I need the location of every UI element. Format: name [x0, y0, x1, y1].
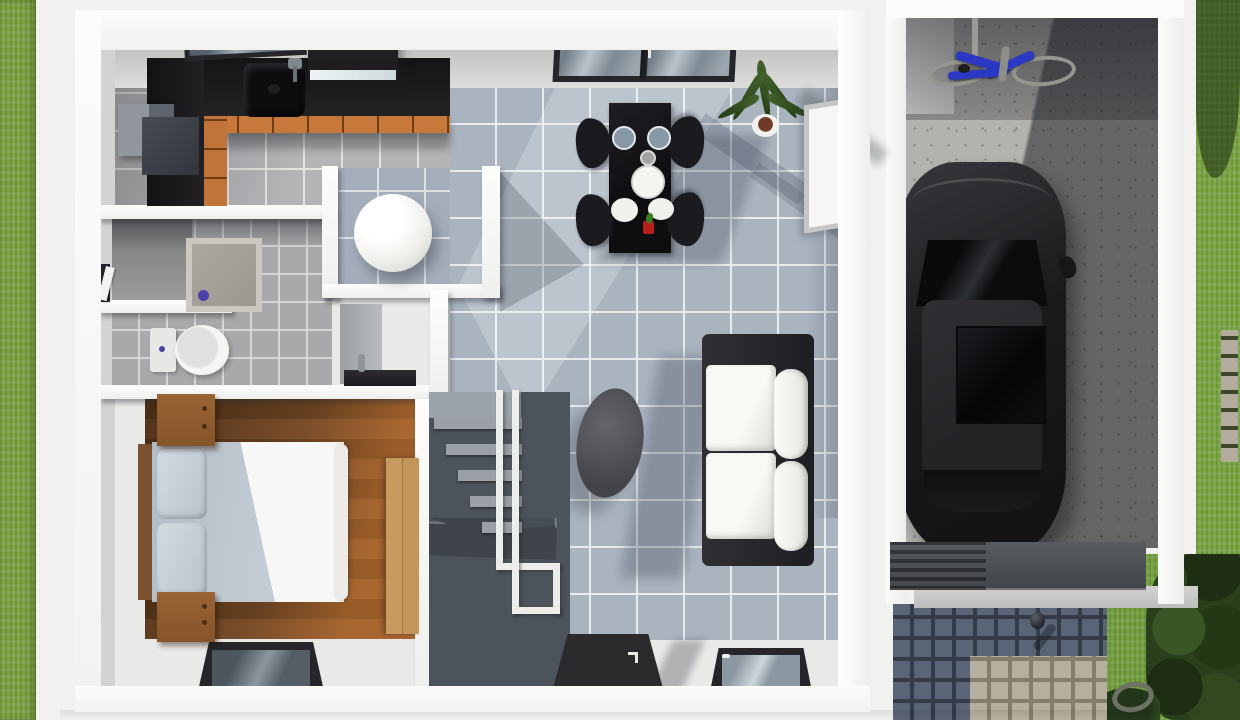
plate-blue — [647, 126, 671, 150]
wall-niche-right — [430, 290, 448, 400]
shower-tray — [186, 238, 262, 312]
kitchen-counter-shadow — [204, 133, 450, 149]
bed-foot-roll — [334, 444, 348, 600]
car-sunroof — [956, 326, 1046, 424]
plant-pot — [752, 114, 779, 137]
wall-nook-bottom — [322, 284, 500, 298]
garage-wall-left — [886, 0, 906, 604]
stair-handrail — [496, 563, 560, 570]
car-windshield — [916, 240, 1048, 306]
car-rear-window — [924, 470, 1040, 512]
bike-stand-pole — [972, 18, 978, 58]
nightstand-top — [157, 394, 215, 446]
drawer-handle — [202, 620, 207, 625]
sofa-back-cushion — [774, 461, 808, 551]
bed-headboard — [138, 444, 152, 600]
sofa-seat-cushion — [706, 365, 776, 451]
bollard-light — [1030, 612, 1045, 629]
plate-blue — [612, 126, 636, 150]
cooktop — [142, 117, 199, 175]
garage-wall-top — [886, 0, 1184, 18]
toilet-flush-button — [159, 346, 165, 352]
stair-step — [516, 518, 557, 528]
sofa-seat-cushion — [706, 453, 776, 539]
stair-step-upper — [446, 444, 522, 455]
stair-handrail — [512, 390, 519, 614]
front-door-handle — [635, 652, 638, 663]
garage-wall-right — [1158, 0, 1184, 604]
bicycle-seat — [958, 64, 970, 73]
house-wall-top — [75, 10, 870, 50]
sink-drain — [268, 84, 280, 94]
wall-bathroom-top — [98, 205, 334, 219]
nightstand-bottom — [157, 592, 215, 642]
plate-large-white — [631, 165, 665, 199]
garage-door-ridges — [890, 542, 986, 590]
toilet-bowl — [175, 325, 229, 375]
lawn-left — [0, 0, 36, 720]
window-handle — [722, 654, 730, 658]
sofa-back-cushion — [774, 369, 808, 459]
stone-paver-path — [1221, 330, 1238, 462]
drawer-handle — [202, 604, 207, 609]
front-door — [552, 634, 664, 692]
stair-handrail — [512, 607, 560, 614]
plate-white — [611, 198, 638, 222]
house-wall-right — [838, 10, 870, 712]
washbasin-faucet — [358, 354, 365, 372]
round-white-table — [354, 194, 432, 272]
stair-handrail — [496, 390, 503, 570]
wall-nook-right — [482, 166, 500, 298]
drawer-handle — [202, 406, 207, 411]
bed-pillow — [157, 449, 207, 519]
kitchen-faucet-arm — [293, 66, 297, 82]
stair-landing — [429, 392, 521, 418]
house-wall-bottom — [75, 686, 870, 712]
drawer-handle — [202, 424, 207, 429]
shower-drain — [198, 290, 209, 301]
floor-plan-scene — [0, 0, 1240, 720]
house-wall-left — [75, 10, 101, 712]
wall-nook-left — [322, 166, 338, 298]
wall-bedroom-top — [98, 385, 432, 399]
car-hood-highlight — [912, 178, 1052, 224]
washbasin-counter — [344, 370, 416, 386]
kitchen-cabinet-fronts — [204, 116, 450, 133]
kitchen-cabinet-fronts-left — [204, 116, 227, 206]
range-hood-light — [310, 70, 396, 80]
cup — [640, 150, 656, 166]
stair-step-upper — [434, 418, 522, 429]
bed-pillow — [157, 523, 207, 597]
wardrobe — [386, 458, 419, 634]
